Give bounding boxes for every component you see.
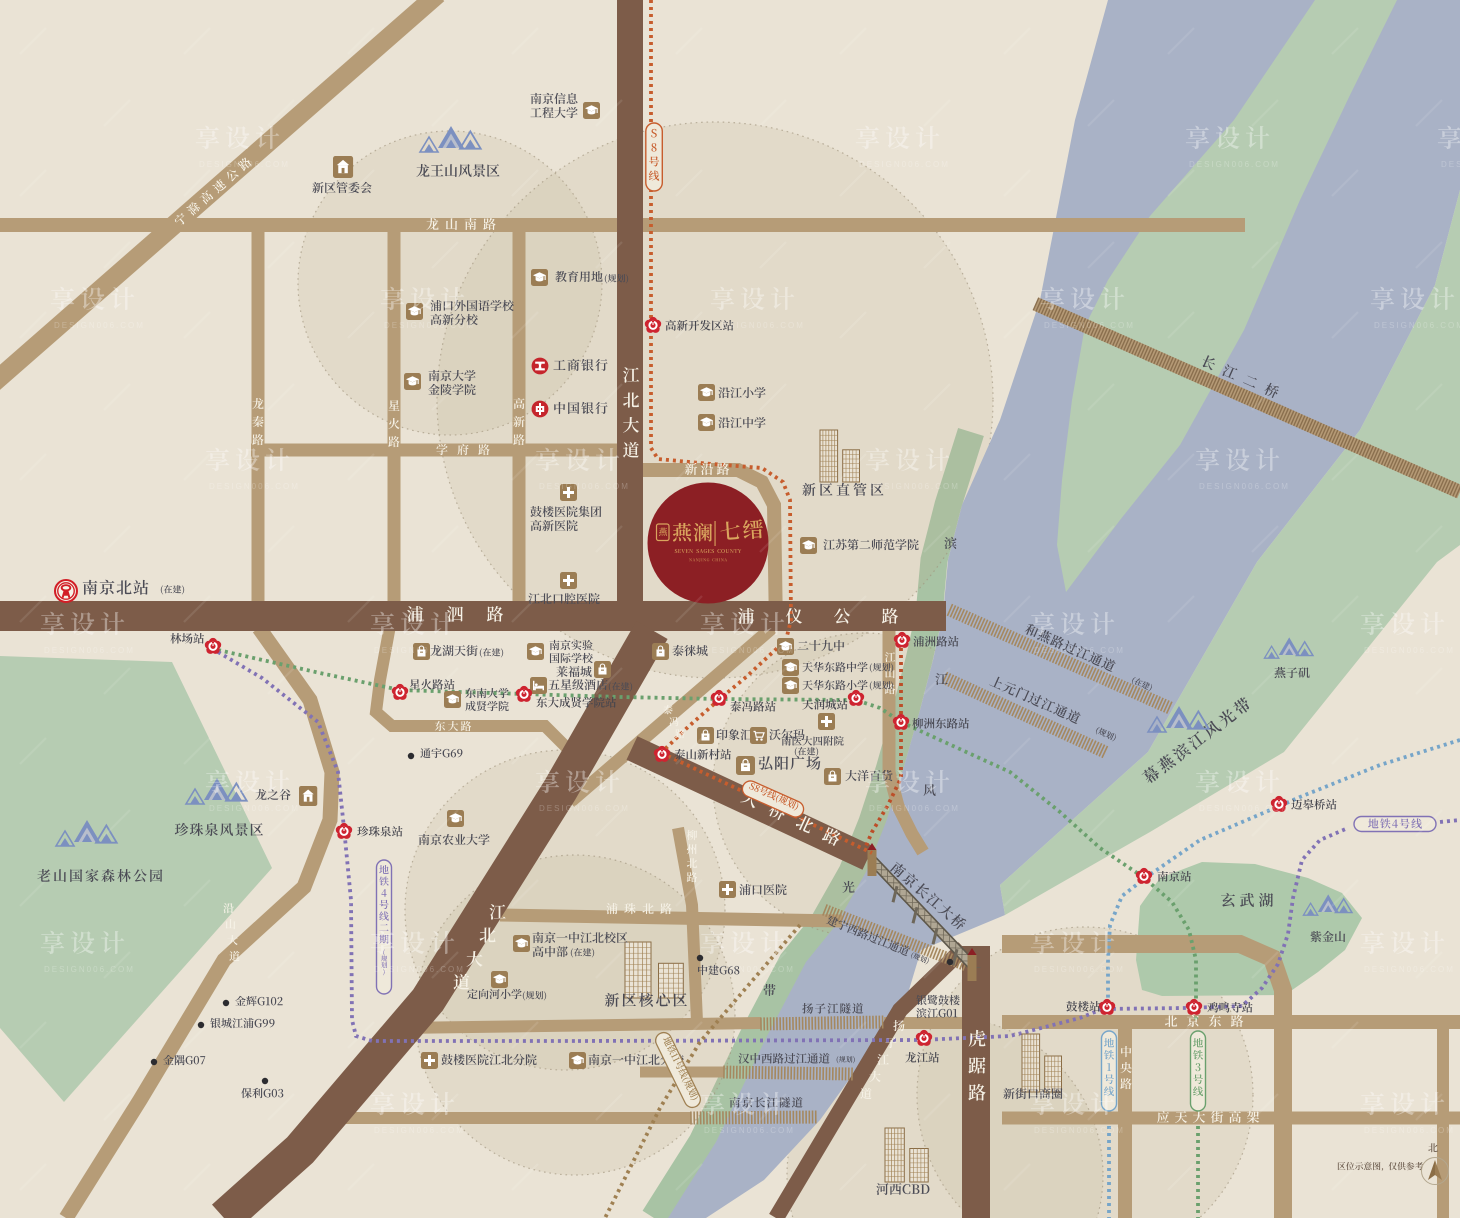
svg-text:DESIGN006.COM: DESIGN006.COM — [539, 482, 630, 491]
svg-text:DESIGN006.COM: DESIGN006.COM — [44, 965, 135, 974]
svg-text:DESIGN006.COM: DESIGN006.COM — [1364, 646, 1455, 655]
svg-text:DESIGN006.COM: DESIGN006.COM — [1374, 321, 1460, 330]
svg-text:DESIGN006.COM: DESIGN006.COM — [1034, 646, 1125, 655]
svg-text:DESIGN006.COM: DESIGN006.COM — [1034, 965, 1125, 974]
svg-text:DESIGN006.COM: DESIGN006.COM — [704, 646, 795, 655]
svg-text:DESIGN006.COM: DESIGN006.COM — [209, 804, 300, 813]
svg-text:DESIGN006.COM: DESIGN006.COM — [859, 160, 950, 169]
svg-text:DESIGN006.COM: DESIGN006.COM — [1199, 804, 1290, 813]
svg-text:DESIGN006.COM: DESIGN006.COM — [1034, 1126, 1125, 1135]
svg-text:DESIGN006.COM: DESIGN006.COM — [374, 965, 465, 974]
svg-text:DESIGN006.COM: DESIGN006.COM — [1364, 965, 1455, 974]
svg-text:DESIGN006.COM: DESIGN006.COM — [1189, 160, 1280, 169]
svg-text:DESIGN006.COM: DESIGN006.COM — [539, 804, 630, 813]
svg-text:DESIGN006.COM: DESIGN006.COM — [209, 482, 300, 491]
svg-text:DESIGN006.COM: DESIGN006.COM — [869, 804, 960, 813]
svg-text:DESIGN006.COM: DESIGN006.COM — [1364, 1126, 1455, 1135]
svg-text:DESIGN006.COM: DESIGN006.COM — [869, 482, 960, 491]
svg-text:DESIGN006.COM: DESIGN006.COM — [374, 646, 465, 655]
svg-text:DESIGN006.COM: DESIGN006.COM — [1044, 321, 1135, 330]
svg-text:DESIGN006.COM: DESIGN006.COM — [1441, 160, 1460, 169]
svg-text:DESIGN006.COM: DESIGN006.COM — [704, 1126, 795, 1135]
svg-text:DESIGN006.COM: DESIGN006.COM — [374, 1126, 465, 1135]
svg-text:DESIGN006.COM: DESIGN006.COM — [54, 321, 145, 330]
svg-text:DESIGN006.COM: DESIGN006.COM — [714, 321, 805, 330]
svg-text:DESIGN006.COM: DESIGN006.COM — [704, 965, 795, 974]
svg-text:DESIGN006.COM: DESIGN006.COM — [1199, 482, 1290, 491]
svg-text:DESIGN006.COM: DESIGN006.COM — [199, 160, 290, 169]
svg-text:DESIGN006.COM: DESIGN006.COM — [384, 321, 475, 330]
svg-text:DESIGN006.COM: DESIGN006.COM — [44, 646, 135, 655]
